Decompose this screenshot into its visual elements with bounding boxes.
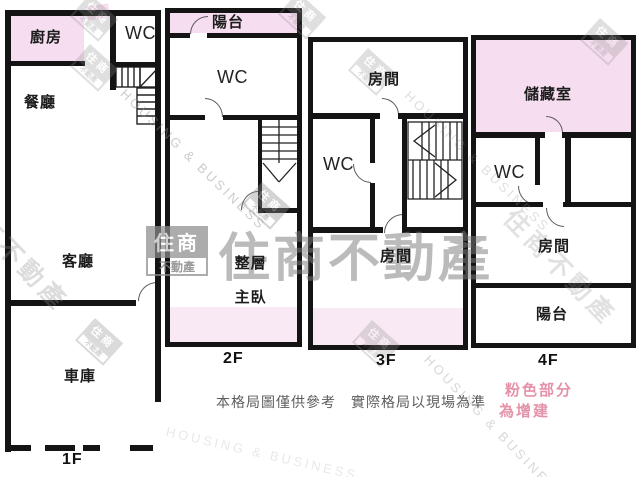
- wall-segment: [308, 37, 468, 42]
- room-label-wc-1f: WC: [125, 23, 156, 44]
- wall-segment: [565, 138, 571, 207]
- room-label-master: 整層 主臥: [214, 238, 267, 323]
- master-line2: 主臥: [235, 289, 267, 306]
- room-label-balcony-4f: 陽台: [536, 306, 568, 323]
- wall-segment: [308, 37, 313, 350]
- wall-segment: [471, 132, 545, 138]
- logo-tile-top: 住商: [83, 318, 123, 357]
- wall-segment: [110, 10, 116, 90]
- wall-segment: [165, 8, 302, 13]
- wall-segment: [370, 119, 375, 163]
- logo-tile-bottom: 不動產: [75, 331, 111, 365]
- logo-tile-bottom-text: 不動產: [77, 64, 99, 85]
- wall-segment: [110, 62, 161, 67]
- wall-segment: [5, 10, 161, 16]
- room-label-balcony-2f: 陽台: [212, 14, 244, 31]
- addition-strip-3f: [311, 308, 465, 345]
- wall-segment: [5, 10, 11, 452]
- room-label-garage: 車庫: [64, 368, 96, 385]
- wall-segment: [471, 343, 636, 348]
- door-arc: [382, 98, 399, 115]
- wall-segment: [130, 445, 153, 451]
- wall-segment: [463, 37, 468, 350]
- wall-segment: [258, 118, 262, 212]
- wall-segment: [155, 10, 161, 402]
- stairs-2f: [262, 118, 297, 184]
- room-label-kitchen: 廚房: [30, 29, 62, 46]
- wall-segment: [563, 202, 636, 207]
- floor-label-3f: 3F: [376, 352, 397, 370]
- wall-segment: [562, 132, 636, 138]
- pink-addition-note: 粉色部分 為增建: [505, 380, 573, 422]
- wall-segment: [258, 208, 302, 213]
- floorplan-canvas: 住商 不動產 住商不動產 HOUSING & BUSINESS HOUSING …: [0, 0, 640, 477]
- door-arc: [546, 208, 564, 227]
- disclaimer-note: 本格局圖僅供參考 實際格局以現場為準: [216, 392, 486, 412]
- master-line1: 整層: [235, 255, 267, 272]
- pink-note-line1: 粉色部分: [505, 382, 573, 399]
- wall-segment: [471, 202, 543, 207]
- floor-label-4f: 4F: [538, 352, 559, 370]
- floor-label-2f: 2F: [223, 350, 244, 368]
- wall-segment: [398, 113, 468, 119]
- door-arc: [205, 98, 223, 117]
- wall-segment: [5, 445, 31, 451]
- room-label-room-3f-bottom: 房間: [380, 248, 412, 265]
- wall-segment: [165, 8, 170, 347]
- floor-label-1f: 1F: [62, 451, 83, 469]
- door-arc: [241, 191, 258, 210]
- wall-segment: [5, 300, 136, 306]
- room-label-wc-2f: WC: [217, 67, 248, 88]
- diagonal-watermark-en: HOUSING & BUSINESS: [165, 424, 360, 477]
- logo-tile-top-text: 住商: [87, 322, 119, 353]
- room-label-wc-4f: WC: [494, 162, 525, 183]
- door-arc: [353, 164, 371, 183]
- wall-segment: [5, 61, 85, 66]
- wall-segment: [165, 342, 302, 347]
- wall-segment: [83, 445, 100, 451]
- room-label-dining: 餐廳: [24, 94, 56, 111]
- stairs-1f: [112, 64, 159, 126]
- pink-note-line2: 為增建: [499, 403, 550, 420]
- logo-tile-watermark: 住商 不動產: [75, 318, 123, 366]
- wall-segment: [165, 115, 205, 120]
- stairs-3f: [407, 121, 463, 200]
- wall-segment: [165, 33, 190, 38]
- room-label-wc-3f: WC: [323, 154, 354, 175]
- room-label-storage-4f: 儲藏室: [524, 86, 572, 103]
- wall-segment: [207, 33, 302, 38]
- wall-segment: [535, 138, 540, 185]
- wall-segment: [223, 115, 302, 120]
- room-label-room-3f-top: 房間: [368, 71, 400, 88]
- wall-segment: [631, 35, 636, 348]
- logo-tile-bottom-text: 不動產: [82, 338, 104, 359]
- wall-segment: [471, 283, 636, 288]
- room-label-room-4f: 房間: [538, 238, 570, 255]
- wall-segment: [308, 345, 468, 350]
- room-label-living: 客廳: [62, 253, 94, 270]
- wall-segment: [297, 8, 302, 347]
- wall-segment: [471, 35, 636, 40]
- wall-segment: [471, 35, 476, 348]
